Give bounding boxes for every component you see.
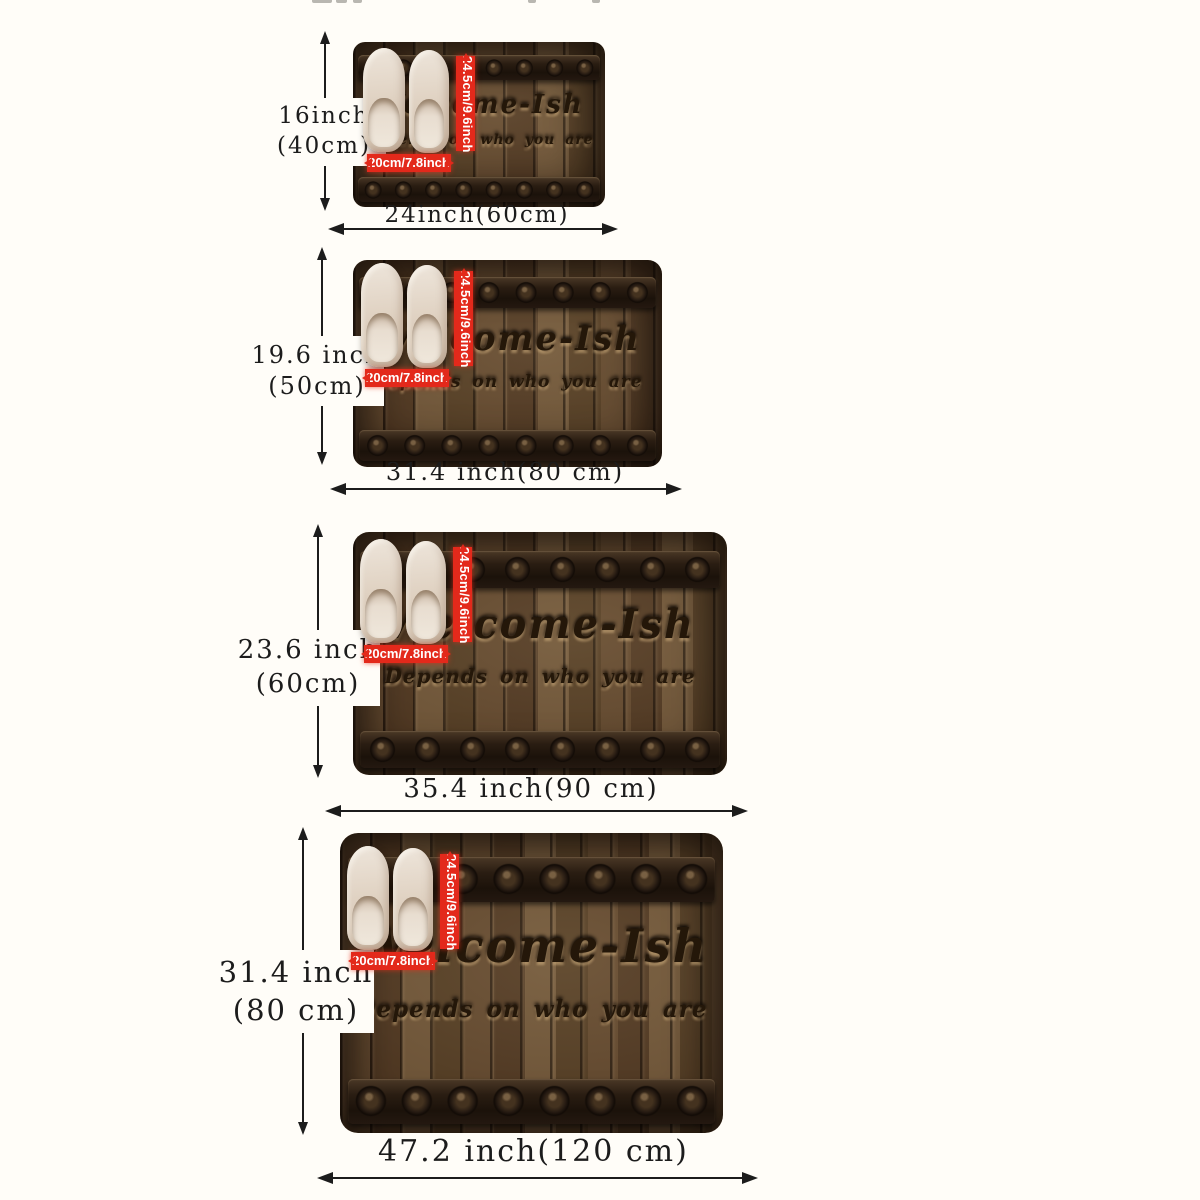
slipper-width-measure: 20cm/7.8inch	[351, 952, 435, 970]
slipper-size-reference: 24.5cm/9.6inch 20cm/7.8inch	[361, 261, 486, 391]
height-dimension-label: 23.6 inch (60cm)	[236, 630, 380, 706]
rivets-icon	[359, 430, 656, 461]
width-dimension-label: 24inch(60cm)	[352, 202, 602, 228]
slipper-right	[409, 50, 449, 153]
slipper-size-reference: 24.5cm/9.6inch 20cm/7.8inch	[347, 844, 472, 974]
width-dimension-label: 47.2 inch(120 cm)	[378, 1134, 678, 1169]
slipper-length-measure: 24.5cm/9.6inch	[454, 271, 473, 366]
slipper-right	[406, 541, 446, 644]
width-dimension-label: 31.4 inch(80 cm)	[375, 458, 635, 486]
slipper-footbed	[414, 99, 444, 148]
cropped-image-remnant	[592, 0, 600, 3]
height-cm: (60cm)	[236, 668, 380, 702]
slipper-length-measure: 24.5cm/9.6inch	[453, 547, 472, 642]
slipper-left	[363, 48, 405, 152]
slipper-footbed	[398, 897, 428, 946]
rivets-icon	[360, 731, 719, 767]
slipper-width-measure: 20cm/7.8inch	[364, 645, 448, 663]
width-dimension-label: 35.4 inch(90 cm)	[391, 774, 671, 804]
cropped-image-remnant	[353, 0, 362, 3]
metal-band-bottom	[358, 177, 600, 202]
cropped-image-remnant	[336, 0, 347, 3]
mat-engraved-subtitle: Depends on who you are	[353, 666, 727, 686]
doormat-preview: Welcome-Ish Depends on who you are 24.5c…	[340, 833, 723, 1133]
metal-band-bottom	[348, 1079, 716, 1124]
slipper-length-measure: 24.5cm/9.6inch	[440, 854, 459, 949]
size-chart-canvas: 16inch (40cm) Welcome-Ish Depends on who…	[0, 0, 1200, 1200]
slipper-footbed	[366, 313, 398, 362]
metal-band-bottom	[359, 430, 656, 461]
width-dimension-arrow	[340, 488, 672, 490]
slipper-footbed	[368, 98, 400, 147]
height-cm: (80 cm)	[218, 992, 374, 1030]
doormat-preview: Welcome-Ish Depends on who you are 24.5c…	[353, 260, 662, 467]
cropped-image-remnant	[312, 0, 332, 3]
rivets-icon	[358, 177, 600, 202]
width-dimension-arrow	[327, 1177, 748, 1179]
width-dimension-arrow	[335, 810, 738, 812]
slipper-footbed	[352, 896, 384, 945]
slipper-length-measure: 24.5cm/9.6inch	[456, 56, 475, 151]
slipper-footbed	[365, 589, 397, 638]
slipper-size-reference: 24.5cm/9.6inch 20cm/7.8inch	[360, 537, 485, 667]
slipper-width-measure: 20cm/7.8inch	[367, 154, 451, 172]
rivets-icon	[348, 1079, 716, 1124]
doormat-preview: Welcome-Ish Depends on who you are 24.5c…	[353, 42, 605, 207]
slipper-left	[347, 846, 389, 950]
metal-band-bottom	[360, 731, 719, 767]
slipper-right	[407, 265, 447, 368]
slipper-size-reference: 24.5cm/9.6inch 20cm/7.8inch	[363, 46, 488, 176]
mat-engraved-subtitle: Depends on who you are	[340, 998, 723, 1021]
slipper-right	[393, 848, 433, 951]
doormat-preview: Welcome-Ish Depends on who you are 24.5c…	[353, 532, 727, 775]
slipper-left	[360, 539, 402, 643]
cropped-image-remnant	[528, 0, 536, 3]
slipper-left	[361, 263, 403, 367]
slipper-width-measure: 20cm/7.8inch	[365, 369, 449, 387]
width-dimension-arrow	[338, 228, 608, 230]
slipper-footbed	[412, 314, 442, 363]
slipper-footbed	[411, 590, 441, 639]
